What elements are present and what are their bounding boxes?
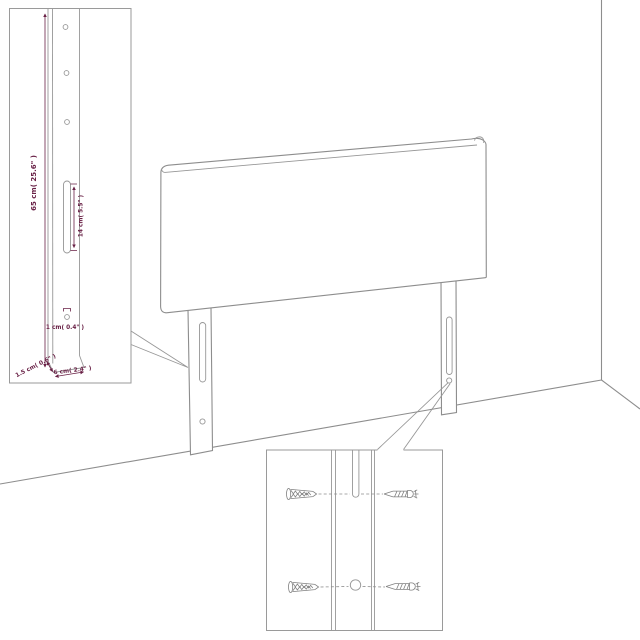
floor-line-right xyxy=(602,380,640,409)
diagram-canvas: 65 cm( 25.6" ) 14 cm( 5.5" ) 1 cm( 0.4" … xyxy=(0,0,640,640)
callout-lines-hardware-inset xyxy=(378,383,451,450)
headboard-panel xyxy=(161,137,487,313)
dimension-slot-label: 14 cm( 5.5" ) xyxy=(79,195,85,238)
dimension-hole-label: 1 cm( 0.4" ) xyxy=(46,325,85,331)
inset-frame xyxy=(267,450,443,631)
leg-dimension-inset: 65 cm( 25.6" ) 14 cm( 5.5" ) 1 cm( 0.4" … xyxy=(10,9,132,384)
hardware-inset xyxy=(267,450,443,631)
headboard-leg-left xyxy=(188,308,213,455)
callout-lines-leg-inset xyxy=(131,331,188,368)
panel-face xyxy=(161,138,487,313)
headboard-leg-right xyxy=(441,278,457,415)
dimension-height-label: 65 cm( 25.6" ) xyxy=(30,155,38,211)
product-diagram: 65 cm( 25.6" ) 14 cm( 5.5" ) 1 cm( 0.4" … xyxy=(0,0,640,640)
